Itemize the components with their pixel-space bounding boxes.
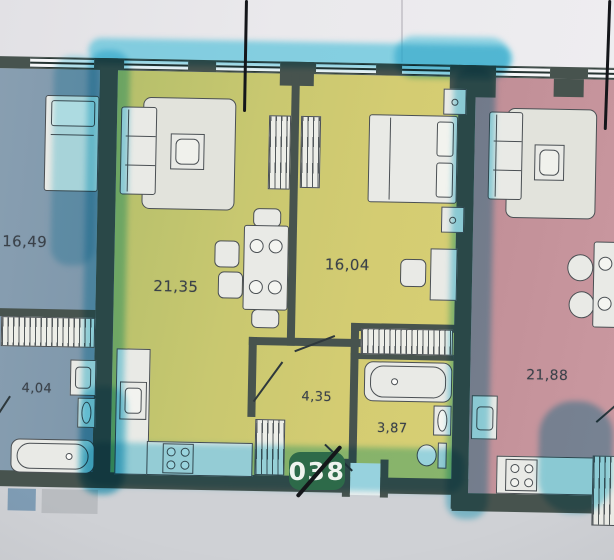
blanket-line	[389, 118, 392, 200]
shaft-block-gray	[41, 489, 97, 514]
sofa-cushion-line	[126, 136, 156, 138]
plate	[597, 297, 611, 311]
plate	[249, 280, 263, 294]
wardrobe-icon	[1, 316, 96, 348]
highlighter-stroke	[394, 36, 511, 80]
tub-inner	[370, 365, 447, 398]
chair-icon	[400, 259, 427, 287]
tv-icon	[534, 144, 565, 181]
chair-icon	[218, 271, 244, 298]
burner	[524, 464, 533, 473]
burner	[510, 463, 519, 472]
sofa-cushion-line	[494, 141, 522, 143]
stove-icon	[505, 459, 538, 492]
room-area-label: 21,88	[526, 367, 568, 384]
highlighter-stroke	[50, 55, 98, 266]
highlighter-stroke	[84, 442, 465, 493]
window-icon	[588, 68, 614, 79]
room-area-label: 16,04	[325, 255, 370, 274]
highlighter-stroke	[538, 400, 614, 513]
sofa-cushion-line	[125, 164, 155, 166]
plate	[250, 239, 264, 253]
dining-table-icon	[592, 241, 614, 328]
bathtub-icon	[364, 361, 453, 403]
dining-table-icon	[242, 225, 289, 311]
sofa-cushion-line	[493, 169, 521, 171]
wall	[247, 337, 257, 417]
shaft-block-blue	[8, 488, 36, 511]
sink-bowl	[437, 410, 447, 432]
room-area-label: 4,35	[301, 389, 332, 405]
pillow	[436, 162, 454, 197]
wardrobe-icon	[361, 328, 453, 356]
tv-screen	[175, 138, 199, 164]
room-area-label: 4,04	[21, 381, 52, 397]
tv-icon	[170, 133, 205, 170]
pillow	[436, 121, 454, 156]
sofa-back	[495, 115, 498, 197]
room-area-label: 16,49	[2, 232, 47, 251]
tv-screen	[539, 149, 559, 175]
highlighter-stroke	[78, 386, 128, 495]
room-area-label: 21,35	[153, 277, 198, 296]
chair-icon	[251, 309, 279, 329]
floorplan-photo: 16,49 21,35 16,04 4,04 4,35 3,87 21,88 0…	[0, 0, 614, 560]
wardrobe-icon	[268, 115, 291, 189]
burner	[510, 477, 519, 486]
room-area-label: 3,87	[377, 421, 408, 437]
wall-pillar	[554, 79, 584, 98]
plate	[268, 280, 282, 294]
chair-icon	[214, 240, 240, 267]
burner	[524, 478, 533, 487]
plate	[269, 239, 283, 253]
wardrobe-icon	[300, 116, 321, 188]
tub-drain	[391, 378, 398, 385]
plate	[598, 257, 612, 271]
bed-icon	[368, 114, 459, 204]
